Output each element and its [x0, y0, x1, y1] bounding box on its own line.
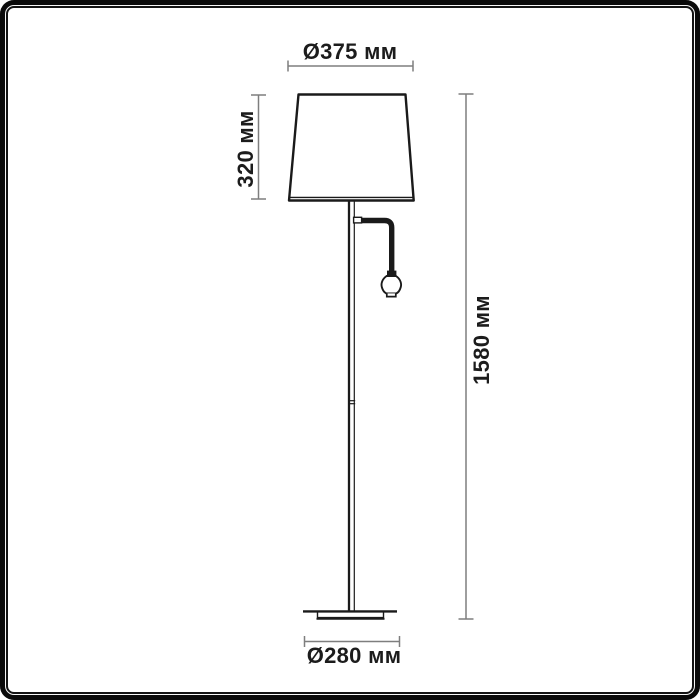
arm-mount-connector: [354, 217, 362, 223]
floor-lamp-drawing: [0, 0, 700, 700]
base-diameter-label: Ø280 мм: [307, 643, 402, 669]
total-height-label: 1580 мм: [469, 295, 495, 385]
shade-diameter-label: Ø375 мм: [303, 39, 398, 65]
lamp-dimension-diagram: Ø375 мм 320 мм 1580 мм Ø280 мм: [0, 0, 700, 700]
lamp-shade: [289, 95, 414, 201]
head-neck: [387, 271, 396, 276]
reading-light-arm: [357, 221, 392, 272]
lamp-pole: [348, 201, 355, 612]
base-lower-tier: [318, 612, 384, 617]
reading-light-head: [382, 271, 402, 297]
shade-height-label: 320 мм: [233, 110, 259, 187]
head-cap: [387, 293, 396, 296]
lamp-base: [303, 611, 397, 618]
head-bulb: [382, 276, 402, 293]
lamp-outline: [289, 95, 414, 619]
